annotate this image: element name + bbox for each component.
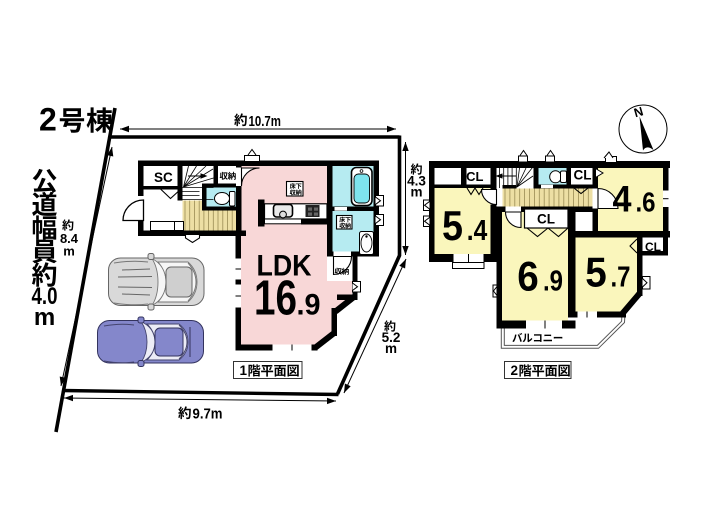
svg-text:m: m xyxy=(63,244,75,259)
svg-text:SC: SC xyxy=(154,170,173,185)
svg-text:.7: .7 xyxy=(611,262,631,294)
svg-text:.9: .9 xyxy=(543,266,563,298)
svg-text:CL: CL xyxy=(537,212,555,227)
svg-text:.9: .9 xyxy=(297,289,321,322)
svg-text:CL: CL xyxy=(645,240,661,254)
svg-text:m: m xyxy=(385,341,397,356)
svg-text:1: 1 xyxy=(240,363,248,378)
svg-text:m: m xyxy=(34,304,55,331)
svg-text:5: 5 xyxy=(442,202,463,249)
svg-text:16: 16 xyxy=(254,272,297,326)
svg-text:9.7m: 9.7m xyxy=(193,406,223,423)
svg-text:2: 2 xyxy=(39,102,57,138)
svg-text:6: 6 xyxy=(517,253,539,300)
svg-text:5: 5 xyxy=(585,249,607,296)
svg-text:CL: CL xyxy=(466,169,483,184)
svg-text:m: m xyxy=(410,185,422,200)
svg-text:4: 4 xyxy=(613,179,632,220)
svg-text:.6: .6 xyxy=(636,187,656,218)
svg-text:CL: CL xyxy=(574,168,592,183)
svg-text:2: 2 xyxy=(511,363,519,378)
svg-text:.4: .4 xyxy=(467,215,488,247)
svg-text:10.7m: 10.7m xyxy=(249,113,282,130)
